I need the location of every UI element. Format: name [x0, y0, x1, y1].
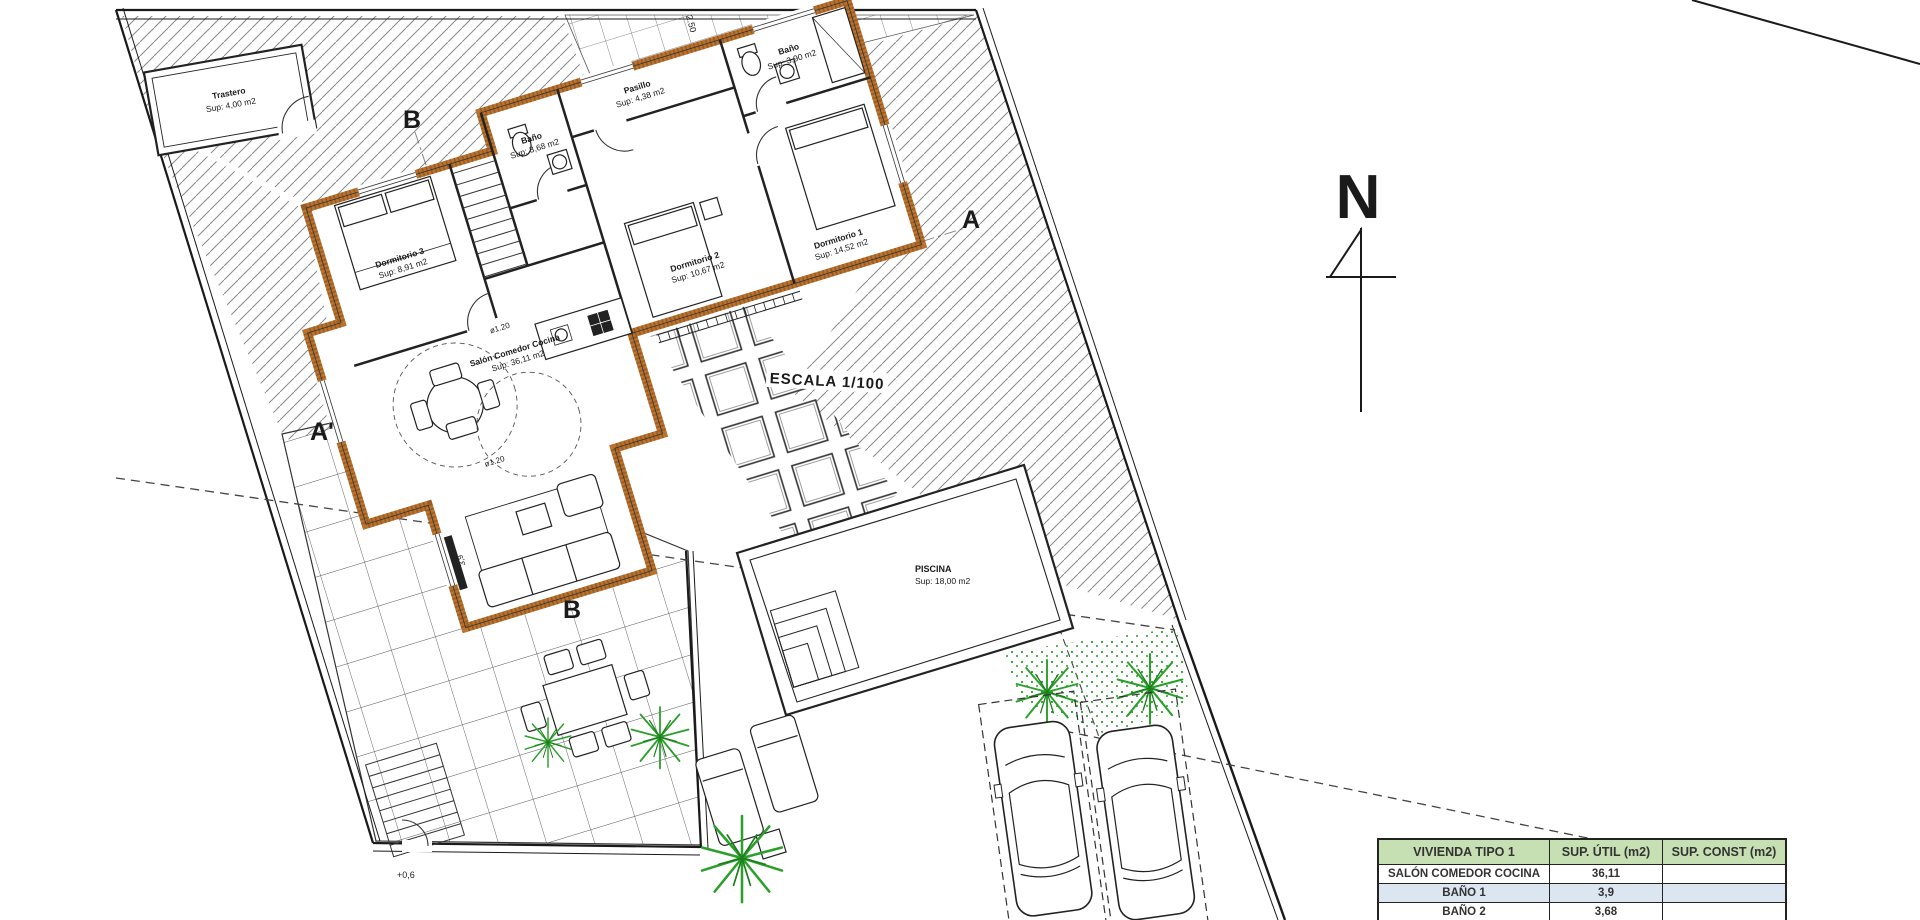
sun-loungers — [690, 714, 831, 870]
pool-area-label: Sup: 18,00 m2 — [915, 576, 971, 586]
area-summary-table: VIVIENDA TIPO 1 SUP. ÚTIL (m2) SUP. CONS… — [1377, 838, 1787, 920]
pool-name-label: PISCINA — [915, 564, 952, 574]
row-salon-util: 36,11 — [1550, 865, 1663, 884]
row-bano1-util: 3,9 — [1550, 884, 1663, 903]
row-salon-label: SALÓN COMEDOR COCINA — [1378, 865, 1550, 884]
level-annotation: +0,6 — [397, 870, 415, 880]
row-bano1-label: BAÑO 1 — [1378, 884, 1550, 903]
floor-plan-drawing: PISCINA Sup: 18,00 m2 Trastero Sup: 4,00… — [0, 0, 1920, 920]
header-vivienda: VIVIENDA TIPO 1 — [1378, 839, 1550, 865]
row-bano2-label: BAÑO 2 — [1378, 903, 1550, 920]
table-row: BAÑO 1 3,9 — [1378, 884, 1786, 903]
header-sup-const: SUP. CONST (m2) — [1663, 839, 1787, 865]
section-a-prime: A' — [310, 418, 334, 446]
row-bano1-const — [1663, 884, 1787, 903]
row-bano2-const — [1663, 903, 1787, 920]
site-plan-canvas: PISCINA Sup: 18,00 m2 Trastero Sup: 4,00… — [0, 0, 1920, 920]
north-label: N — [1336, 163, 1381, 232]
row-salon-const — [1663, 865, 1787, 884]
table-header-row: VIVIENDA TIPO 1 SUP. ÚTIL (m2) SUP. CONS… — [1378, 839, 1786, 865]
table-row: SALÓN COMEDOR COCINA 36,11 — [1378, 865, 1786, 884]
section-b-top: B — [403, 106, 421, 134]
header-sup-util: SUP. ÚTIL (m2) — [1550, 839, 1663, 865]
table-row: BAÑO 2 3,68 — [1378, 903, 1786, 920]
section-b-bottom: B — [563, 596, 581, 624]
north-arrow: N — [1326, 163, 1396, 412]
vegetation-strip — [1003, 628, 1190, 735]
row-bano2-util: 3,68 — [1550, 903, 1663, 920]
section-a: A — [962, 206, 980, 234]
